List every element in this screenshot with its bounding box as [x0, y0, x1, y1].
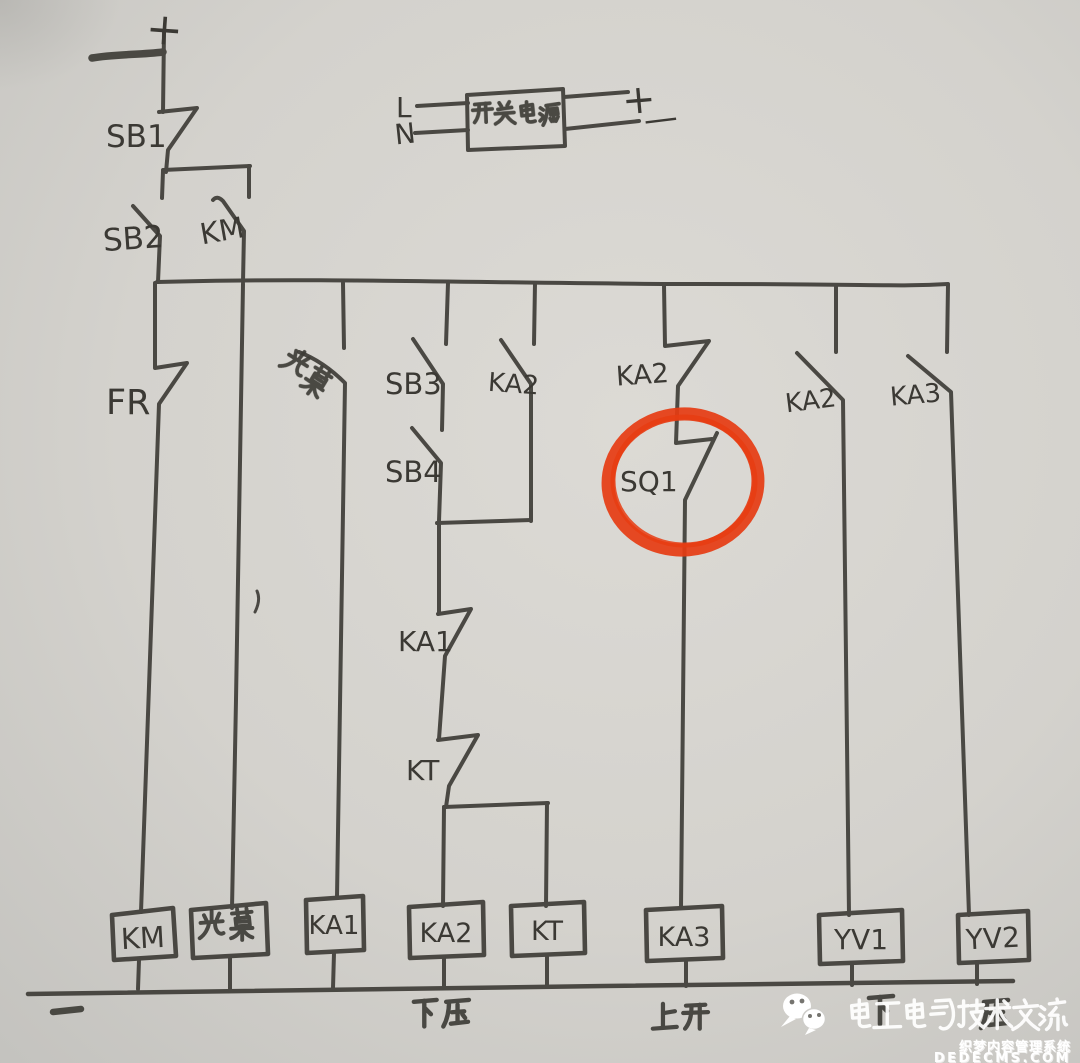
label-ka2-right: KA2 — [784, 383, 838, 419]
label-kt-nc: KT — [406, 754, 440, 787]
label-plus-top: + — [144, 3, 184, 56]
label-psu-minus: — — [641, 97, 680, 141]
circuit-diagram-photo: + L N + — SB1 SB2 KM FR SB3 SB4 KA2 KA2 … — [0, 0, 1080, 1063]
label-coil-ka1: KA1 — [309, 911, 360, 941]
label-sb3: SB3 — [385, 367, 442, 401]
label-sb2: SB2 — [102, 219, 165, 259]
label-fr: FR — [106, 383, 150, 423]
label-ka3-right: KA3 — [889, 378, 942, 412]
label-ka1-nc: KA1 — [398, 625, 453, 658]
label-coil-ka2: KA2 — [420, 918, 473, 949]
label-sq1: SQ1 — [620, 465, 678, 498]
label-coil-km: KM — [120, 920, 166, 956]
label-coil-yv2: YV2 — [964, 921, 1021, 957]
label-minus-bottom — [53, 1009, 81, 1012]
wire-to-ka2-coil — [443, 807, 444, 906]
label-ka2-parallel: KA2 — [487, 368, 540, 401]
label-sb4: SB4 — [385, 455, 442, 489]
paper-corner-shadow — [0, 0, 400, 300]
diagram-svg: + L N + — SB1 SB2 KM FR SB3 SB4 KA2 KA2 … — [0, 0, 1080, 1063]
label-coil-ka3: KA3 — [658, 922, 711, 953]
label-sb1: SB1 — [106, 119, 167, 155]
label-psu-n: N — [393, 116, 417, 151]
wire-sb2-stub — [162, 171, 163, 198]
label-ka2-nc: KA2 — [615, 358, 670, 393]
wire-to-kt-coil — [546, 803, 547, 906]
label-coil-yv1: YV1 — [833, 923, 888, 956]
label-coil-kt: KT — [531, 916, 564, 947]
cms-site: DEDECMS.COM — [934, 1051, 1071, 1063]
